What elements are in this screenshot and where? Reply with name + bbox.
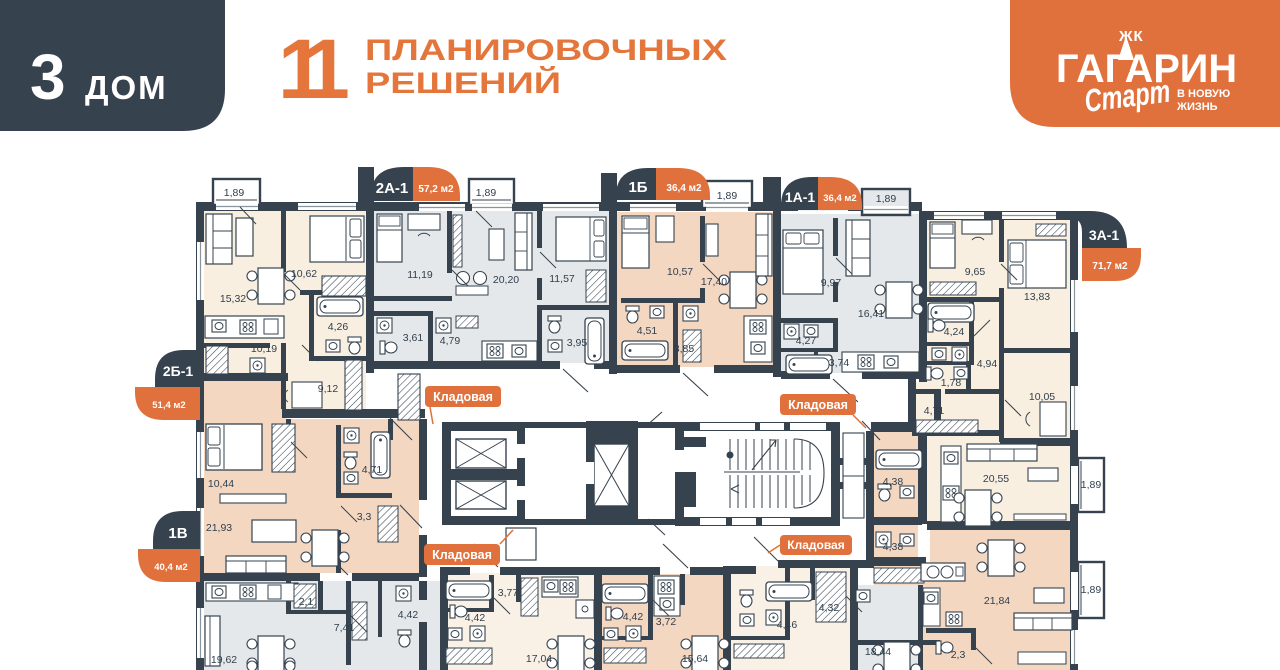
- svg-text:4,42: 4,42: [398, 609, 419, 621]
- svg-text:9,65: 9,65: [965, 266, 986, 278]
- svg-text:1,89: 1,89: [476, 187, 497, 199]
- svg-text:2,1: 2,1: [299, 596, 314, 608]
- svg-text:4,24: 4,24: [944, 326, 965, 338]
- svg-text:3,61: 3,61: [403, 332, 424, 344]
- svg-text:4,38: 4,38: [883, 476, 904, 488]
- svg-text:13,83: 13,83: [1024, 291, 1050, 303]
- svg-text:10,05: 10,05: [1029, 391, 1055, 403]
- svg-text:2А-1: 2А-1: [376, 180, 409, 197]
- svg-text:19,62: 19,62: [211, 654, 237, 666]
- svg-text:4,46: 4,46: [777, 619, 798, 631]
- svg-text:51,4 м2: 51,4 м2: [152, 400, 185, 411]
- svg-text:3,77: 3,77: [498, 587, 519, 599]
- svg-text:ПЛАНИРОВОЧНЫХ: ПЛАНИРОВОЧНЫХ: [365, 34, 727, 67]
- svg-text:1,78: 1,78: [941, 377, 962, 389]
- svg-text:7,41: 7,41: [334, 622, 355, 634]
- svg-text:ЖИЗНЬ: ЖИЗНЬ: [1176, 101, 1218, 113]
- svg-text:40,4 м2: 40,4 м2: [154, 562, 187, 573]
- svg-text:4,38: 4,38: [883, 541, 904, 553]
- svg-text:1,89: 1,89: [1081, 479, 1102, 491]
- svg-text:10,19: 10,19: [251, 343, 277, 355]
- svg-text:17,04: 17,04: [526, 653, 552, 665]
- svg-text:3,95: 3,95: [567, 337, 588, 349]
- svg-text:4,26: 4,26: [328, 321, 349, 333]
- svg-text:3А-1: 3А-1: [1089, 227, 1120, 243]
- svg-text:4,94: 4,94: [977, 358, 998, 370]
- svg-text:ДОМ: ДОМ: [85, 69, 168, 106]
- svg-text:3,85: 3,85: [674, 343, 695, 355]
- svg-text:15,32: 15,32: [220, 293, 246, 305]
- svg-text:10,44: 10,44: [208, 478, 234, 490]
- svg-text:17,40: 17,40: [701, 276, 727, 288]
- svg-text:18,44: 18,44: [865, 646, 891, 658]
- svg-text:9,97: 9,97: [821, 277, 842, 289]
- svg-text:71,7 м2: 71,7 м2: [1092, 261, 1128, 272]
- svg-text:11,19: 11,19: [407, 269, 433, 281]
- svg-text:3,72: 3,72: [656, 616, 677, 628]
- svg-text:4,32: 4,32: [819, 602, 840, 614]
- svg-text:36,4 м2: 36,4 м2: [823, 193, 856, 204]
- svg-text:21,84: 21,84: [984, 595, 1010, 607]
- svg-text:4,79: 4,79: [440, 335, 461, 347]
- svg-text:2Б-1: 2Б-1: [163, 363, 194, 379]
- svg-text:1В: 1В: [168, 525, 187, 542]
- svg-text:16,41: 16,41: [858, 308, 884, 320]
- svg-text:1,89: 1,89: [224, 187, 245, 199]
- svg-text:Кладовая: Кладовая: [433, 390, 493, 404]
- svg-text:21,93: 21,93: [206, 522, 232, 534]
- svg-text:2,3: 2,3: [951, 649, 966, 661]
- svg-text:57,2 м2: 57,2 м2: [418, 184, 454, 195]
- svg-text:20,20: 20,20: [493, 274, 519, 286]
- svg-text:1,89: 1,89: [1081, 584, 1102, 596]
- svg-text:РЕШЕНИЙ: РЕШЕНИЙ: [365, 66, 561, 100]
- svg-text:Кладовая: Кладовая: [788, 398, 848, 412]
- svg-text:10,57: 10,57: [667, 266, 693, 278]
- svg-text:1,89: 1,89: [876, 193, 897, 205]
- svg-text:3: 3: [30, 41, 66, 113]
- svg-text:3,74: 3,74: [829, 357, 850, 369]
- svg-text:1,89: 1,89: [717, 190, 738, 202]
- svg-text:15,64: 15,64: [682, 653, 708, 665]
- svg-text:Кладовая: Кладовая: [787, 538, 844, 552]
- svg-text:10,62: 10,62: [291, 268, 317, 280]
- svg-text:В НОВУЮ: В НОВУЮ: [1177, 88, 1230, 100]
- svg-text:9,12: 9,12: [318, 383, 339, 395]
- svg-text:4,42: 4,42: [623, 611, 644, 623]
- svg-text:36,4 м2: 36,4 м2: [666, 183, 702, 194]
- svg-text:20,55: 20,55: [983, 473, 1009, 485]
- svg-text:4,71: 4,71: [924, 405, 945, 417]
- svg-text:1Б: 1Б: [628, 179, 647, 196]
- svg-text:4,71: 4,71: [362, 464, 383, 476]
- svg-text:ЖК: ЖК: [1118, 28, 1144, 45]
- svg-text:11,57: 11,57: [549, 273, 575, 285]
- svg-text:4,51: 4,51: [637, 325, 658, 337]
- svg-text:1А-1: 1А-1: [785, 189, 816, 205]
- svg-text:4,27: 4,27: [796, 335, 817, 347]
- svg-text:3,3: 3,3: [357, 511, 372, 523]
- svg-text:4,42: 4,42: [465, 612, 486, 624]
- svg-text:Кладовая: Кладовая: [432, 548, 492, 562]
